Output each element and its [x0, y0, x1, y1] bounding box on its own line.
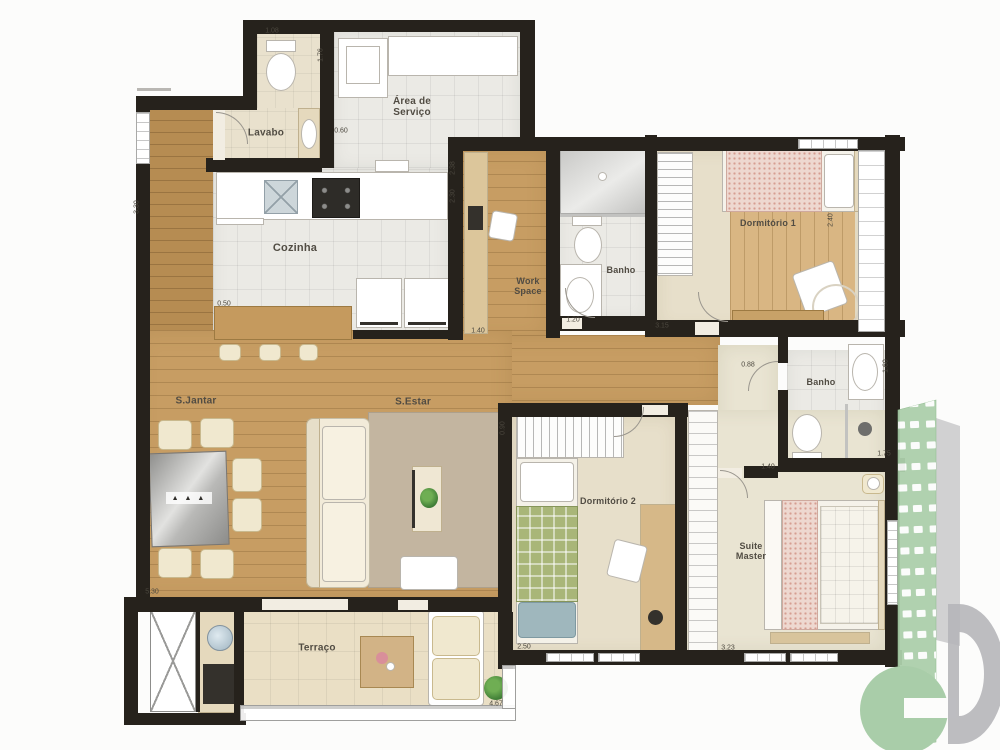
dimension-label-4: 2.38 [450, 161, 457, 175]
dimension-label-18: 3.23 [721, 645, 735, 652]
dimension-label-3: 3.30 [134, 200, 141, 214]
dimension-label-19: 4.67 [489, 701, 503, 708]
dimension-label-14: 0.90 [500, 421, 507, 435]
dimension-label-9: 2.40 [828, 213, 835, 227]
dimension-label-2: 0.60 [334, 128, 348, 135]
logo-d-bowl [959, 604, 1000, 744]
dimension-label-11: 1.60 [883, 359, 890, 373]
dimension-label-0: 1.08 [265, 28, 279, 35]
floorplan-image: LavaboÁrea deServiçoCozinhaWorkSpaceBanh… [0, 0, 1000, 750]
dimension-label-8: 3.15 [655, 323, 669, 330]
dimension-label-6: 1.40 [471, 328, 485, 335]
developer-building-logo [858, 396, 1000, 750]
dimension-label-16: 5.30 [145, 589, 159, 596]
dimension-label-7: 1.20 [566, 317, 580, 324]
dimension-label-1: 1.76 [318, 48, 325, 62]
dimension-label-17: 2.50 [517, 644, 531, 651]
dimension-labels-layer: 1.081.760.603.302.382.301.401.203.152.40… [0, 0, 1000, 750]
logo-d-bar [948, 604, 959, 744]
dimension-label-10: 0.88 [741, 362, 755, 369]
dimension-label-5: 2.30 [450, 189, 457, 203]
dimension-label-15: 0.50 [217, 301, 231, 308]
dimension-label-13: 1.40 [761, 464, 775, 471]
